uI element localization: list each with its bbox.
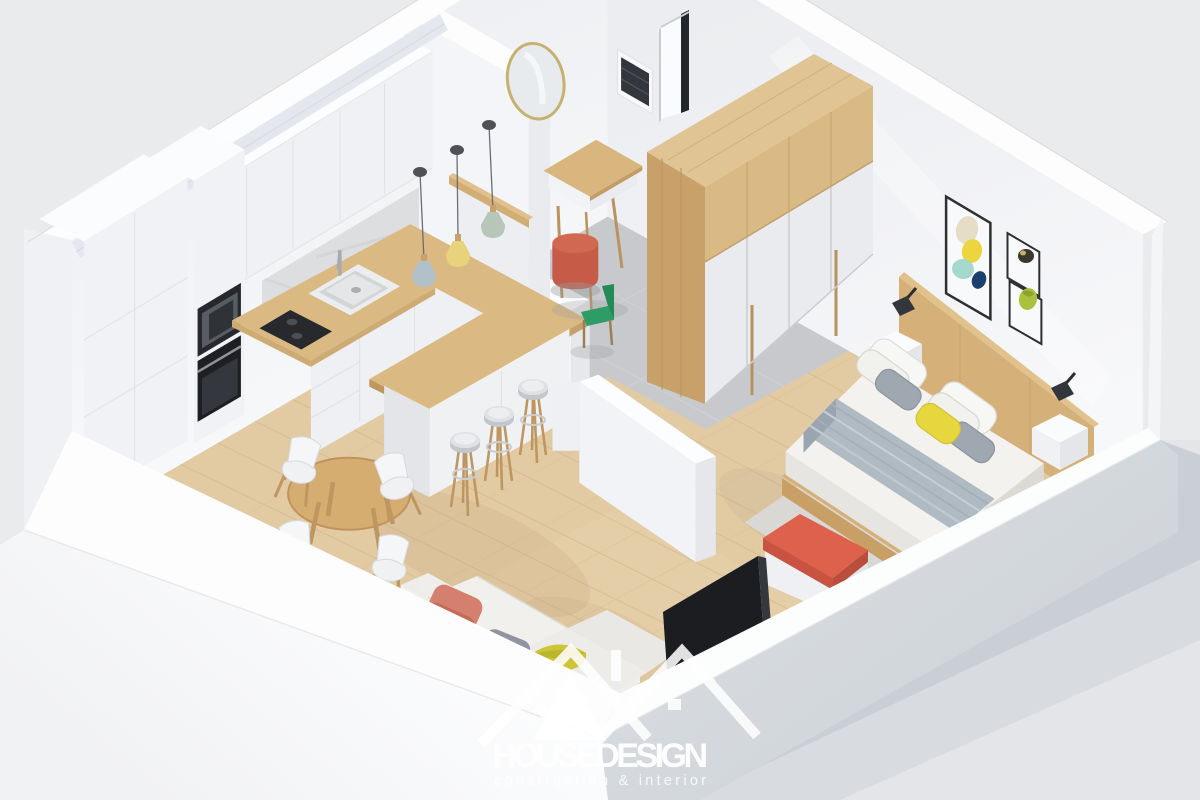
svg-text:HOUSEDESIGN: HOUSEDESIGN bbox=[492, 737, 708, 775]
